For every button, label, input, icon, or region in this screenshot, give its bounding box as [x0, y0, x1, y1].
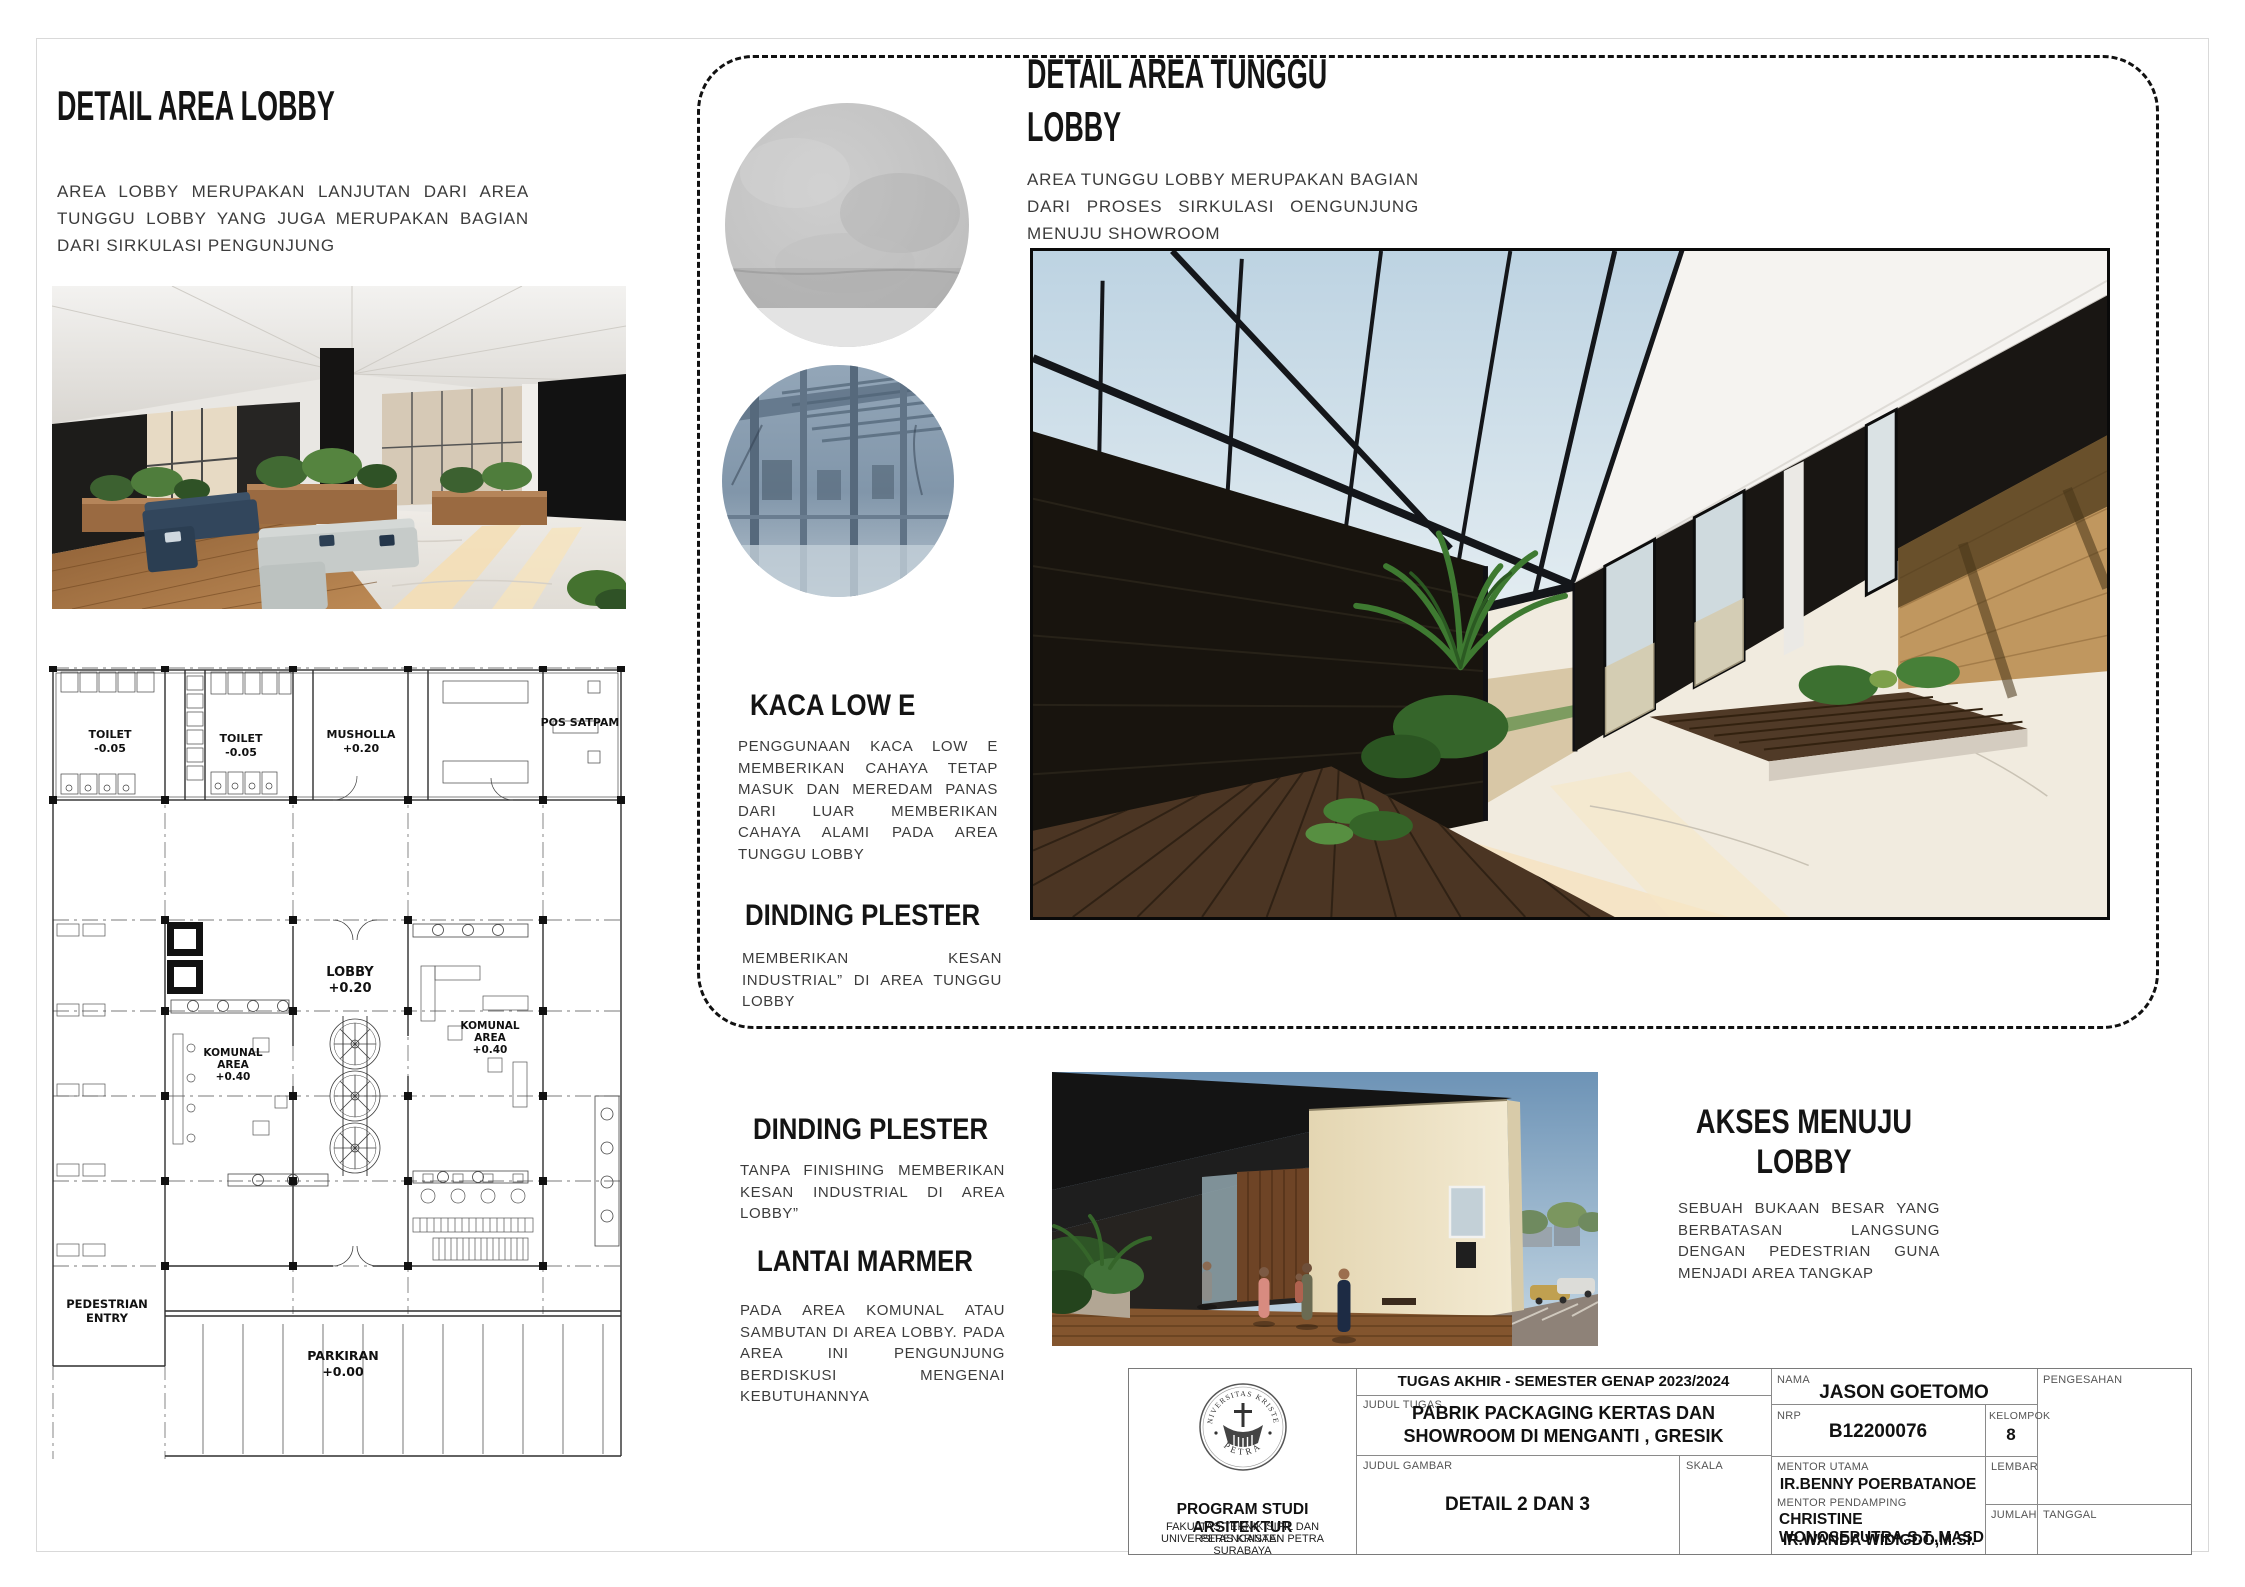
titleblock-divider: [1679, 1455, 1680, 1554]
planter-benches: [171, 924, 619, 1246]
ground-floor-plan-drawing: TOILET -0.05 TOILET -0.05 MUSHOLLA +0.20…: [43, 666, 633, 1461]
university-seal-logo: UNIVERSITAS KRISTEN PETRA: [1197, 1381, 1289, 1473]
section-body-detail-area-lobby: AREA LOBBY MERUPAKAN LANJUTAN DARI AREA …: [57, 178, 529, 259]
svg-text:+0.20: +0.20: [343, 742, 380, 755]
svg-text:ENTRY: ENTRY: [86, 1311, 129, 1325]
section-title-detail-area-lobby: DETAIL AREA LOBBY: [57, 80, 335, 132]
judul-tugas-value: PABRIK PACKAGING KERTAS DAN SHOWROOM DI …: [1376, 1402, 1751, 1448]
room-label-pedestrian-entry: PEDESTRIAN: [66, 1297, 147, 1311]
section-title-detail-area-tunggu-line2: LOBBY: [1027, 101, 1121, 153]
nrp-value: B12200076: [1771, 1421, 1985, 1443]
lobby-access-exterior-render-image: [1052, 1072, 1598, 1346]
presentation-board: { "sections": { "lobby": { "title": "DET…: [0, 0, 2245, 1587]
section-body-akses-menuju-lobby: SEBUAH BUKAAN BESAR YANG BERBATASAN LANG…: [1678, 1198, 1940, 1284]
titleblock-divider: [1771, 1404, 2037, 1405]
room-label-musholla: MUSHOLLA: [327, 728, 396, 741]
room-label-komunal-right: KOMUNAL: [460, 1020, 519, 1032]
skala-label: SKALA: [1686, 1460, 1723, 1472]
drawing-title-block: UNIVERSITAS KRISTEN PETRA PROGRAM STUDI …: [1128, 1368, 2192, 1555]
svg-text:AREA: AREA: [474, 1032, 506, 1044]
svg-text:+0.40: +0.40: [473, 1044, 508, 1056]
mentor-pendamping-value-2: IR.WANDA WIDIGDO,M.SI.: [1783, 1532, 1997, 1550]
institution-city: SURABAYA: [1129, 1545, 1356, 1557]
svg-text:+0.00: +0.00: [322, 1364, 364, 1379]
room-label-toilet-2: TOILET: [220, 732, 263, 745]
section-title-kaca-low-e: KACA LOW E: [750, 688, 915, 724]
kelompok-label: KELOMPOK: [1989, 1410, 2050, 1422]
plan-walls: [53, 670, 621, 1456]
room-label-komunal-left: KOMUNAL: [203, 1047, 262, 1059]
section-body-kaca-low-e: PENGGUNAAN KACA LOW E MEMBERIKAN CAHAYA …: [738, 736, 998, 865]
titleblock-divider: [1356, 1455, 1771, 1456]
pengesahan-label: PENGESAHAN: [2043, 1374, 2122, 1386]
section-body-dinding-plester-tunggu: MEMBERIKAN KESAN INDUSTRIAL” DI AREA TUN…: [742, 948, 1002, 1013]
mentor-utama-label: MENTOR UTAMA: [1777, 1461, 1869, 1473]
titleblock-header: TUGAS AKHIR - SEMESTER GENAP 2023/2024: [1356, 1373, 1771, 1390]
room-label-lobby: LOBBY: [326, 965, 374, 980]
lobby-interior-render-image: [52, 286, 626, 609]
room-label-pos-satpam: POS SATPAM: [541, 716, 620, 729]
section-body-lantai-marmer: PADA AREA KOMUNAL ATAU SAMBUTAN DI AREA …: [740, 1300, 1005, 1408]
parking-stalls: [203, 1324, 603, 1454]
room-label-toilet-1: TOILET: [89, 728, 132, 741]
svg-text:-0.05: -0.05: [225, 746, 257, 759]
room-label-parkiran: PARKIRAN: [307, 1348, 378, 1363]
nama-value: JASON GOETOMO: [1771, 1382, 2037, 1404]
tanggal-label: TANGGAL: [2043, 1509, 2097, 1521]
tunggu-corridor-render-image: [1030, 248, 2110, 920]
material-sample-plaster-image: [725, 103, 969, 347]
section-title-dinding-plester-tunggu: DINDING PLESTER: [745, 898, 980, 934]
svg-text:AREA: AREA: [217, 1059, 249, 1071]
svg-text:+0.20: +0.20: [329, 981, 372, 996]
lembar-label: LEMBAR: [1991, 1461, 2038, 1473]
section-body-detail-area-tunggu: AREA TUNGGU LOBBY MERUPAKAN BAGIAN DARI …: [1027, 166, 1419, 247]
jumlah-label: JUMLAH: [1991, 1509, 2037, 1521]
mentor-utama-value: IR.BENNY POERBATANOE: [1771, 1476, 1985, 1494]
svg-text:+0.40: +0.40: [216, 1071, 251, 1083]
section-title-detail-area-tunggu-line1: DETAIL AREA TUNGGU: [1027, 48, 1327, 100]
structural-grid-lines: [53, 668, 621, 1459]
titleblock-divider: [1985, 1504, 2191, 1505]
titleblock-divider: [1771, 1456, 2037, 1457]
section-title-dinding-plester-lobby: DINDING PLESTER: [753, 1112, 988, 1148]
material-sample-lowe-glass-image: [722, 365, 954, 597]
titleblock-divider: [1356, 1369, 1357, 1554]
section-title-akses-menuju-lobby: AKSES MENUJU LOBBY: [1654, 1102, 1954, 1182]
titleblock-divider: [1356, 1395, 1771, 1396]
judul-gambar-label: JUDUL GAMBAR: [1363, 1460, 1452, 1472]
section-body-dinding-plester-lobby: TANPA FINISHING MEMBERIKAN KESAN INDUSTR…: [740, 1160, 1005, 1225]
institution-university: UNIVERSITAS KRISTEN PETRA: [1129, 1533, 1356, 1545]
elevator-shaft: [167, 922, 203, 994]
section-title-lantai-marmer: LANTAI MARMER: [757, 1244, 973, 1280]
judul-gambar-value: DETAIL 2 DAN 3: [1356, 1494, 1679, 1516]
wall-display-sign: [1450, 1187, 1484, 1237]
mentor-pendamping-label: MENTOR PENDAMPING: [1777, 1497, 1907, 1509]
kelompok-value: 8: [1985, 1425, 2037, 1445]
svg-text:-0.05: -0.05: [94, 742, 126, 755]
